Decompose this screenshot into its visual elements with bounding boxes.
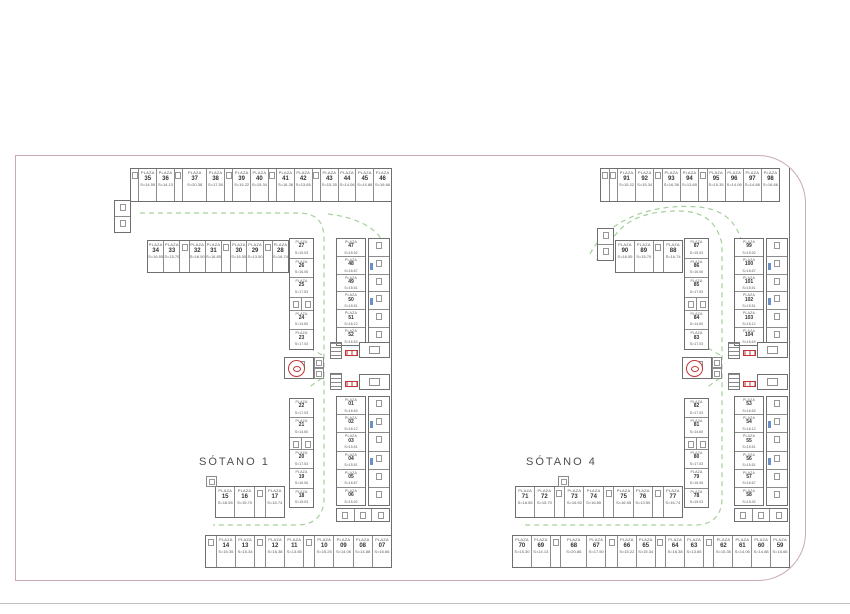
stall-number: 73 — [571, 494, 578, 501]
fixture-icon — [223, 244, 229, 251]
stall-area: S=16.12 — [742, 322, 755, 326]
stall-number: 15 — [222, 494, 229, 501]
stall-number: 51 — [348, 316, 354, 322]
door-marker-icon — [768, 298, 771, 305]
stall-area: S=15.51 — [344, 445, 357, 449]
fixture-icon — [688, 441, 694, 448]
stall-area: S=16.55 — [148, 255, 163, 260]
stall-number: 78 — [694, 494, 700, 500]
stall-number: 87 — [694, 244, 700, 250]
level-marker-icon — [743, 381, 756, 387]
stall-area: S=17.53 — [690, 462, 703, 466]
parking-stall: PLAZA14S=15.35 — [217, 536, 236, 567]
stall-area: S=16.06 — [295, 270, 308, 274]
parking-stall: PLAZA19S=16.06 — [290, 469, 313, 488]
fixture-icon — [342, 512, 348, 519]
fixture-icon — [376, 473, 382, 480]
stall-number: 47 — [348, 244, 354, 250]
stall-number: 16 — [241, 494, 248, 501]
fixture-icon — [774, 418, 780, 425]
door-marker-icon — [370, 298, 373, 305]
stall-area: S=15.22 — [234, 183, 249, 188]
utility-cell — [115, 201, 130, 217]
stall-group: PLAZA70S=15.30PLAZA69S=14.13PLAZA68S=20.… — [512, 535, 790, 568]
stairs-icon — [728, 342, 740, 359]
stall-area: S=16.67 — [742, 269, 755, 273]
parking-stall: PLAZA25S=17.53 — [290, 278, 313, 298]
stall-area: S=20.86 — [566, 550, 581, 555]
wall-line — [789, 168, 790, 567]
parking-stall: PLAZA78S=15.03 — [685, 489, 708, 507]
utility-cell — [369, 292, 389, 310]
stall-number: 28 — [277, 248, 284, 255]
stall-number: 08 — [359, 543, 366, 550]
fixture-icon — [700, 441, 706, 448]
parking-stall: PLAZA58S=15.92 — [735, 488, 763, 505]
utility-cell — [355, 509, 373, 521]
stall-number: 03 — [348, 439, 354, 445]
stall-number: 42 — [300, 176, 307, 183]
fixture-icon — [376, 242, 382, 249]
stall-area: S=14.06 — [340, 183, 355, 188]
utility-cell — [767, 433, 787, 451]
stall-area: S=13.65 — [296, 183, 311, 188]
door-marker-icon — [370, 458, 373, 465]
stall-area: S=15.92 — [344, 500, 357, 504]
fixture-icon — [226, 172, 232, 179]
stall-area: S=16.12 — [344, 427, 357, 431]
stairs-icon — [728, 373, 740, 390]
parking-stall: PLAZA77S=16.74 — [664, 487, 682, 517]
parking-stall: PLAZA18S=15.03 — [290, 489, 313, 507]
parking-stall: PLAZA31S=16.85 — [206, 241, 222, 272]
parking-stall: PLAZA76S=13.50 — [634, 487, 653, 517]
parking-stall: PLAZA68S=20.86 — [561, 536, 587, 567]
stall-area: S=17.53 — [295, 290, 308, 294]
parking-stall: PLAZA45S=14.88 — [356, 169, 374, 201]
ramp-circle-icon — [686, 360, 703, 377]
parking-stall: PLAZA24S=14.60 — [290, 311, 313, 331]
stall-area: S=15.22 — [619, 550, 634, 555]
utility-cell — [313, 169, 321, 201]
utility-cell — [302, 438, 313, 450]
stall-group: PLAZA47S=15.92PLAZA48S=16.67PLAZA49S=15.… — [336, 238, 366, 346]
utility-box — [712, 368, 722, 379]
parking-stall: PLAZA63S=13.65 — [685, 536, 704, 567]
stall-number: 99 — [746, 244, 752, 250]
stall-group: PLAZA01S=16.63PLAZA02S=16.12PLAZA03S=15.… — [336, 396, 366, 506]
parking-stall: PLAZA39S=15.22 — [233, 169, 251, 201]
parking-stall: PLAZA16S=15.70 — [235, 487, 254, 517]
stall-number: 38 — [212, 176, 219, 183]
stall-area: S=16.38 — [668, 550, 683, 555]
stall-number: 80 — [694, 455, 700, 461]
stall-number: 49 — [348, 280, 354, 286]
parking-stall: PLAZA09S=14.06 — [334, 536, 353, 567]
utility-box — [314, 368, 324, 379]
utility-cell — [767, 275, 787, 293]
utility-cell — [767, 292, 787, 310]
stall-area: S=16.85 — [586, 501, 601, 506]
utility-cell — [685, 438, 697, 450]
stall-group — [597, 228, 614, 261]
parking-stall: PLAZA91S=15.22 — [618, 169, 636, 201]
stall-group — [766, 396, 788, 506]
stall-number: 68 — [570, 543, 577, 550]
stall-number: 27 — [299, 244, 305, 250]
stall-area: S=13.65 — [682, 183, 697, 188]
stall-number: 92 — [641, 176, 648, 183]
stall-number: 30 — [235, 248, 242, 255]
stall-group: PLAZA15S=16.55PLAZA16S=15.70PLAZA17S=16.… — [215, 486, 285, 518]
fixture-icon — [257, 490, 263, 497]
stall-group: PLAZA87S=15.03PLAZA86S=16.06PLAZA85S=17.… — [684, 238, 709, 350]
utility-cell-pair — [290, 298, 313, 311]
stall-area: S=15.35 — [218, 550, 233, 555]
fixture-icon — [376, 295, 382, 302]
parking-stall: PLAZA89S=15.70 — [635, 241, 654, 272]
stall-number: 36 — [162, 176, 169, 183]
stall-area: S=15.92 — [742, 251, 755, 255]
stall-area: S=15.70 — [164, 255, 179, 260]
parking-stall: PLAZA80S=17.53 — [685, 450, 708, 469]
stall-number: 12 — [272, 543, 279, 550]
stall-area: S=13.50 — [248, 255, 263, 260]
parking-stall: PLAZA74S=16.85 — [584, 487, 603, 517]
utility-cell — [206, 536, 217, 567]
parking-stall: PLAZA70S=15.30 — [513, 536, 532, 567]
parking-stall: PLAZA60S=14.88 — [752, 536, 771, 567]
fixture-icon — [175, 172, 181, 179]
utility-cell — [555, 487, 566, 517]
parking-stall: PLAZA88S=16.74 — [664, 241, 682, 272]
page-divider-line — [0, 603, 850, 604]
utility-cell — [654, 169, 663, 201]
stall-area: S=16.38 — [268, 550, 283, 555]
parking-stall: PLAZA17S=16.74 — [266, 487, 284, 517]
stall-area: S=16.74 — [267, 501, 282, 506]
parking-stall: PLAZA56S=15.51 — [735, 452, 763, 470]
fixture-icon — [376, 278, 382, 285]
parking-stall: PLAZA73S=16.50 — [565, 487, 584, 517]
utility-cell — [699, 169, 708, 201]
parking-stall: PLAZA27S=15.03 — [290, 239, 313, 259]
utility-cell — [697, 298, 708, 310]
fixture-icon — [774, 278, 780, 285]
stall-area: S=16.06 — [690, 481, 703, 485]
utility-cell — [255, 536, 266, 567]
level-marker-icon — [345, 350, 358, 356]
fixture-icon — [774, 313, 780, 320]
stall-area: S=16.50 — [190, 255, 205, 260]
stall-area: S=20.38 — [187, 183, 202, 188]
stall-area: S=14.06 — [735, 550, 750, 555]
fixture-icon — [610, 172, 616, 179]
stall-number: 71 — [522, 494, 529, 501]
stall-area: S=15.22 — [619, 183, 634, 188]
utility-cell — [269, 169, 277, 201]
stall-number: 17 — [271, 494, 278, 501]
stall-area: S=16.12 — [742, 427, 755, 431]
fixture-icon — [657, 539, 663, 546]
stall-number: 29 — [252, 248, 259, 255]
door-marker-icon — [768, 458, 771, 465]
fixture-icon — [740, 512, 746, 519]
utility-cell — [264, 241, 273, 272]
parking-stall: PLAZA71S=16.55 — [516, 487, 535, 517]
stall-number: 44 — [344, 176, 351, 183]
utility-box — [558, 476, 569, 487]
parking-stall: PLAZA97S=14.88 — [744, 169, 762, 201]
stall-area: S=16.55 — [218, 501, 233, 506]
utility-cell — [222, 241, 231, 272]
stall-number: 34 — [152, 248, 159, 255]
parking-stall: PLAZA43S=15.35 — [321, 169, 339, 201]
fixture-icon — [208, 539, 214, 546]
stall-area: S=15.51 — [742, 286, 755, 290]
stall-area: S=17.53 — [295, 462, 308, 466]
fixture-icon — [313, 172, 319, 179]
stall-area: S=16.63 — [742, 409, 755, 413]
stall-number: 93 — [668, 176, 675, 183]
parking-stall: PLAZA98S=16.66 — [762, 169, 779, 201]
parking-stall: PLAZA10S=15.25 — [315, 536, 334, 567]
stall-number: 11 — [291, 543, 297, 550]
stall-number: 100 — [745, 262, 753, 268]
utility-cell — [767, 239, 787, 257]
fixture-icon — [655, 244, 661, 251]
utility-cell — [337, 509, 355, 521]
stall-area: S=14.88 — [754, 550, 769, 555]
parking-stall: PLAZA13S=15.34 — [236, 536, 255, 567]
stall-area: S=14.88 — [357, 183, 372, 188]
stall-area: S=16.63 — [742, 340, 755, 344]
utility-cell — [767, 452, 787, 470]
stall-number: 70 — [519, 543, 526, 550]
stall-area: S=15.92 — [344, 251, 357, 255]
stall-area: S=15.03 — [295, 251, 308, 255]
utility-cell — [735, 509, 753, 521]
parking-stall: PLAZA37S=20.38 — [183, 169, 207, 201]
fixture-icon — [376, 418, 382, 425]
stall-number: 24 — [299, 316, 305, 322]
stall-number: 41 — [282, 176, 289, 183]
utility-cell — [369, 239, 389, 257]
floor-plan-sheet: SÓTANO 2SÓTANO 1PLAZA35S=14.55PLAZA36S=1… — [0, 0, 850, 614]
fixture-icon — [306, 539, 312, 546]
stall-area: S=13.50 — [635, 501, 650, 506]
stall-area: S=17.50 — [208, 183, 223, 188]
parking-stall: PLAZA34S=16.55 — [148, 241, 164, 272]
fixture-icon — [376, 260, 382, 267]
stall-number: 57 — [746, 475, 752, 481]
stall-number: 35 — [144, 176, 151, 183]
floor-label: SÓTANO 4 — [526, 456, 597, 468]
stall-number: 33 — [169, 248, 176, 255]
utility-cell — [604, 487, 615, 517]
fixture-icon — [293, 301, 299, 308]
door-marker-icon — [370, 421, 373, 428]
utility-cell — [685, 298, 697, 310]
parking-stall: PLAZA46S=16.66 — [374, 169, 391, 201]
fixture-icon — [774, 295, 780, 302]
utility-cell — [551, 536, 562, 567]
stall-area: S=16.66 — [375, 183, 390, 188]
parking-stall: PLAZA72S=15.70 — [535, 487, 554, 517]
parking-stall: PLAZA62S=15.35 — [714, 536, 733, 567]
stall-number: 61 — [739, 543, 746, 550]
stall-area: S=14.06 — [727, 183, 742, 188]
utility-cell — [610, 169, 619, 201]
parking-stall: PLAZA86S=16.06 — [685, 259, 708, 279]
stall-area: S=15.35 — [716, 550, 731, 555]
parking-stall: PLAZA01S=16.63 — [337, 397, 365, 415]
fixture-icon — [305, 441, 311, 448]
fixture-icon — [774, 491, 780, 498]
parking-stall: PLAZA48S=16.67 — [337, 257, 365, 275]
stall-number: 23 — [299, 336, 305, 342]
stall-area: S=15.51 — [742, 463, 755, 467]
stairs-icon — [330, 373, 342, 390]
stall-group — [766, 238, 788, 346]
stall-area: S=15.34 — [637, 183, 652, 188]
parking-stall: PLAZA92S=15.34 — [636, 169, 654, 201]
stall-area: S=16.38 — [278, 183, 293, 188]
stall-number: 56 — [746, 457, 752, 463]
utility-cell — [767, 397, 787, 415]
fixture-icon — [774, 400, 780, 407]
stall-number: 62 — [720, 543, 727, 550]
stall-area: S=14.60 — [295, 322, 308, 326]
fixture-icon — [293, 441, 299, 448]
fixture-icon — [774, 473, 780, 480]
parking-stall: PLAZA02S=16.12 — [337, 415, 365, 433]
utility-cell — [656, 536, 667, 567]
stall-number: 06 — [348, 493, 354, 499]
stall-area: S=16.63 — [344, 340, 357, 344]
parking-stall: PLAZA57S=16.67 — [735, 470, 763, 488]
parking-stall: PLAZA103S=16.12 — [735, 310, 763, 328]
utility-cell — [225, 169, 233, 201]
utility-cell — [115, 217, 130, 232]
stall-number: 39 — [238, 176, 245, 183]
stall-number: 31 — [210, 248, 217, 255]
utility-box — [712, 357, 722, 368]
parking-stall: PLAZA06S=15.92 — [337, 488, 365, 505]
stall-number: 54 — [746, 420, 752, 426]
parking-stall: PLAZA87S=15.03 — [685, 239, 708, 259]
fixture-icon — [269, 172, 275, 179]
stall-area: S=16.66 — [763, 183, 778, 188]
fixture-icon — [376, 491, 382, 498]
parking-stall: PLAZA35S=14.55 — [139, 169, 157, 201]
stall-area: S=14.06 — [336, 550, 351, 555]
stall-number: 32 — [194, 248, 201, 255]
parking-stall: PLAZA100S=16.67 — [735, 257, 763, 275]
fixture-icon — [376, 455, 382, 462]
stall-number: 14 — [222, 543, 229, 550]
parking-stall: PLAZA102S=15.51 — [735, 292, 763, 310]
stall-number: 63 — [691, 543, 698, 550]
stall-number: 72 — [541, 494, 548, 501]
stall-number: 10 — [321, 543, 328, 550]
stall-number: 82 — [694, 404, 700, 410]
stall-area: S=16.06 — [295, 481, 308, 485]
stall-area: S=14.88 — [745, 183, 760, 188]
utility-cell — [290, 298, 302, 310]
fixture-icon — [774, 260, 780, 267]
stall-area: S=14.60 — [690, 430, 703, 434]
parking-stall: PLAZA82S=17.03 — [685, 399, 708, 418]
stall-area: S=16.06 — [690, 270, 703, 274]
stall-area: S=15.70 — [636, 255, 651, 260]
parking-stall: PLAZA81S=14.60 — [685, 418, 708, 437]
utility-cell — [304, 536, 315, 567]
stall-area: S=15.34 — [238, 550, 253, 555]
stall-area: S=16.55 — [518, 501, 533, 506]
stall-group — [368, 396, 390, 506]
stall-area: S=15.25 — [317, 550, 332, 555]
utility-cell — [175, 169, 183, 201]
fixture-icon — [376, 313, 382, 320]
parking-stall: PLAZA95S=15.35 — [708, 169, 726, 201]
parking-stall: PLAZA85S=17.53 — [685, 278, 708, 298]
fixture-icon — [556, 490, 562, 497]
fixture-icon — [376, 400, 382, 407]
fixture-icon — [360, 512, 366, 519]
fixture-icon — [706, 539, 712, 546]
stall-area: S=16.50 — [567, 501, 582, 506]
utility-cell — [372, 509, 389, 521]
stall-area: S=15.51 — [344, 463, 357, 467]
stall-number: 50 — [348, 298, 354, 304]
stall-number: 37 — [191, 176, 198, 183]
fixture-icon — [688, 301, 694, 308]
fixture-icon — [120, 204, 126, 211]
stall-number: 96 — [731, 176, 738, 183]
stall-number: 104 — [745, 333, 753, 339]
stall-area: S=17.03 — [690, 342, 703, 346]
stall-area: S=14.13 — [158, 183, 173, 188]
stall-area: S=16.66 — [374, 550, 389, 555]
stall-number: 98 — [767, 176, 774, 183]
fixture-icon — [603, 248, 609, 255]
stall-area: S=14.13 — [533, 550, 548, 555]
utility-room — [757, 342, 788, 358]
stall-area: S=17.03 — [295, 342, 308, 346]
stall-number: 52 — [348, 333, 354, 339]
parking-stall: PLAZA23S=17.03 — [290, 330, 313, 349]
parking-stall: PLAZA69S=14.13 — [532, 536, 551, 567]
stall-group: PLAZA90S=16.55PLAZA89S=15.70PLAZA88S=16.… — [615, 240, 683, 273]
stall-area: S=13.65 — [287, 550, 302, 555]
fixture-icon — [132, 172, 138, 179]
stall-number: 85 — [694, 283, 700, 289]
utility-cell — [369, 257, 389, 275]
utility-cell — [369, 433, 389, 451]
stall-number: 64 — [672, 543, 679, 550]
parking-stall: PLAZA61S=14.06 — [733, 536, 752, 567]
stall-area: S=14.60 — [690, 322, 703, 326]
parking-stall: PLAZA67S=17.50 — [587, 536, 606, 567]
utility-cell — [767, 257, 787, 275]
stall-area: S=15.51 — [344, 286, 357, 290]
stall-number: 55 — [746, 439, 752, 445]
parking-stall: PLAZA36S=14.13 — [157, 169, 175, 201]
stall-area: S=16.67 — [742, 481, 755, 485]
stall-number: 66 — [624, 543, 631, 550]
stall-number: 101 — [745, 280, 753, 286]
